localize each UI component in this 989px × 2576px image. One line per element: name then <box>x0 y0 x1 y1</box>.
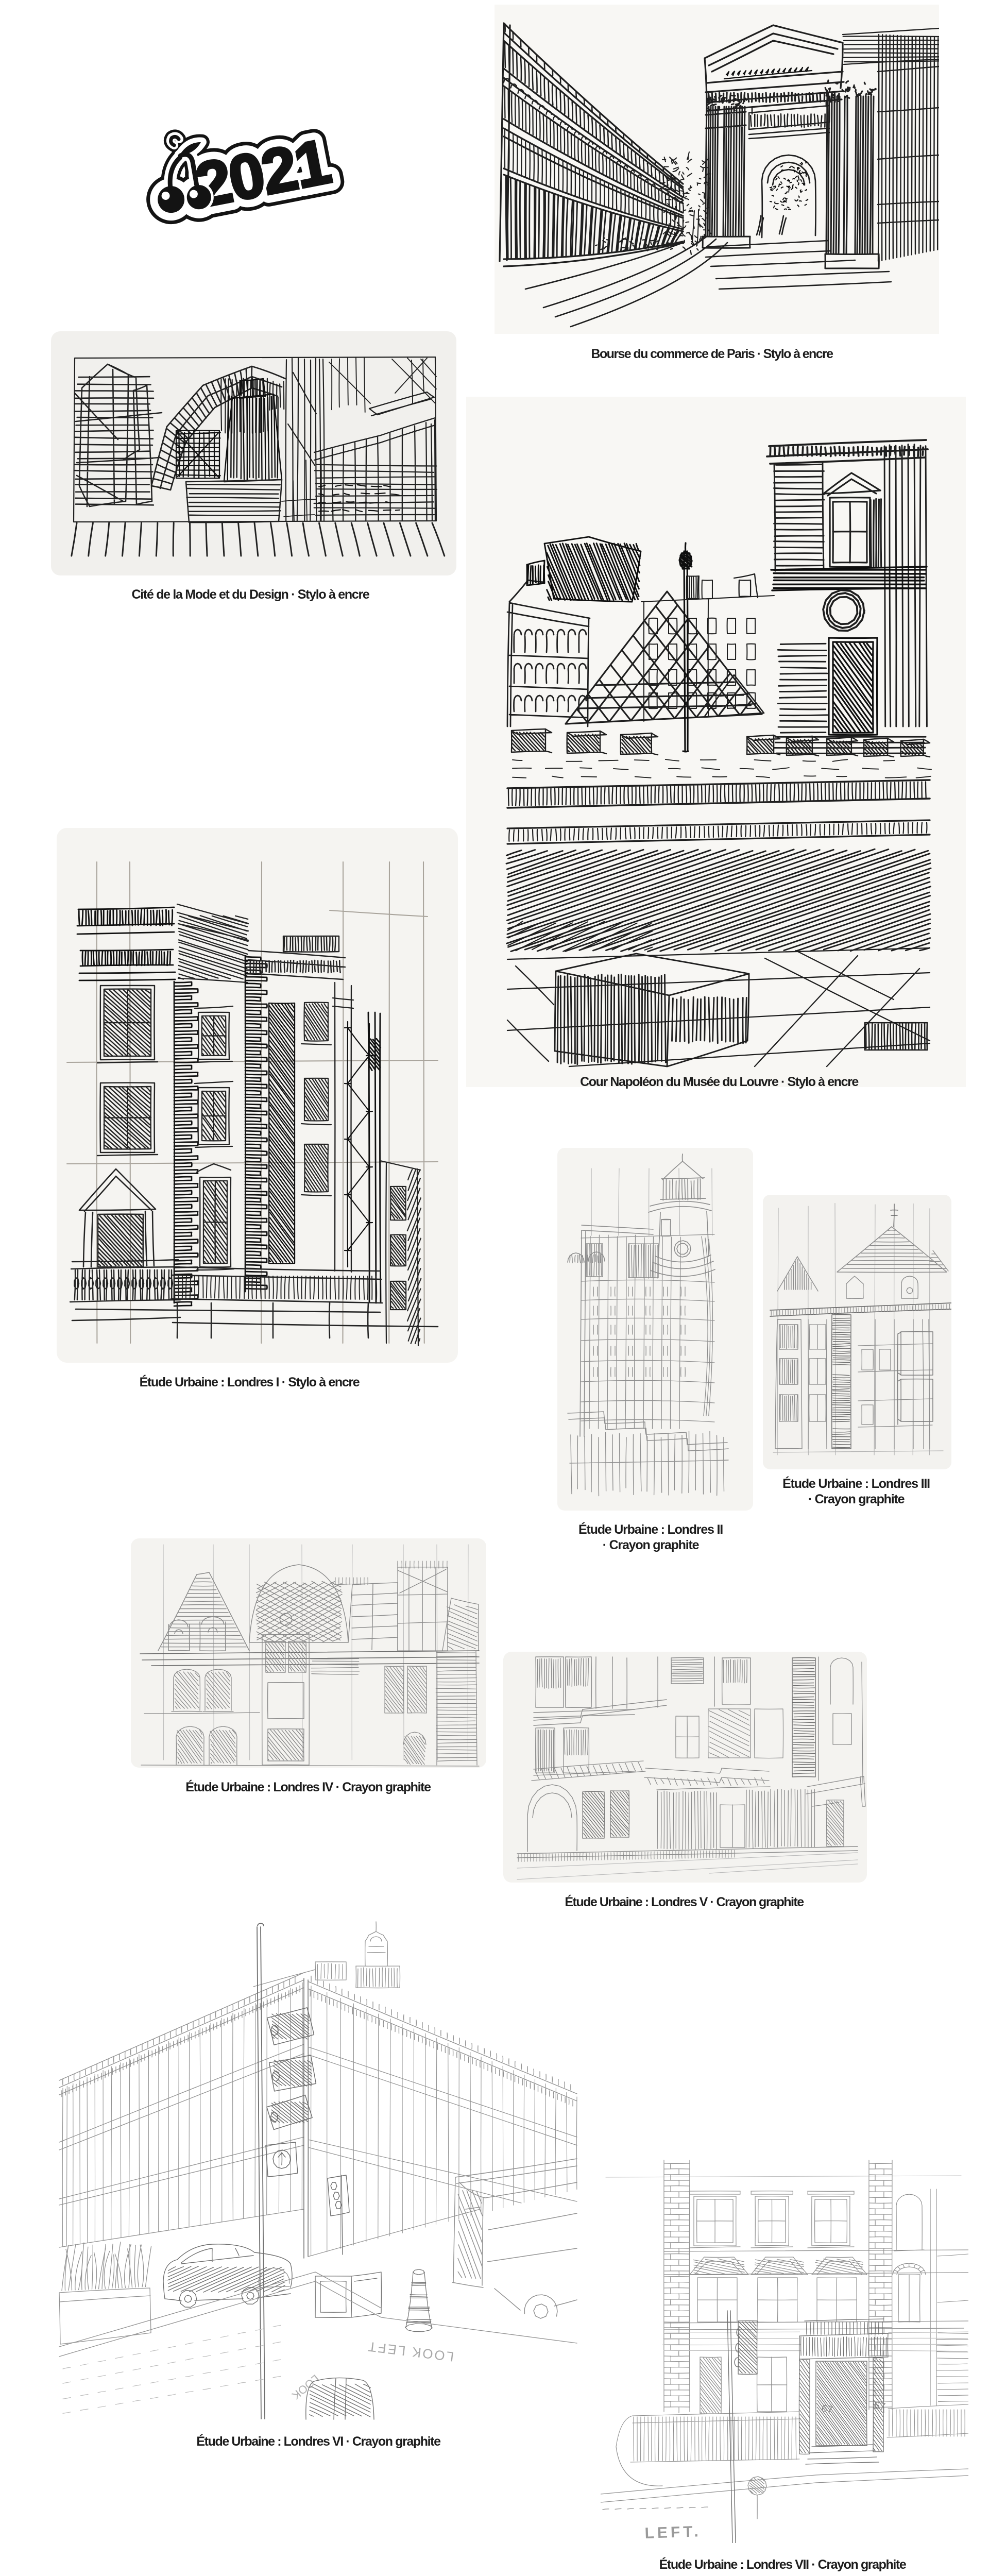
svg-text:67: 67 <box>821 2403 833 2416</box>
svg-text:2021: 2021 <box>190 126 335 221</box>
svg-text:LEFT.: LEFT. <box>644 2523 702 2542</box>
svg-text:LOOK LEFT: LOOK LEFT <box>366 2338 454 2365</box>
svg-text:67: 67 <box>873 2400 886 2413</box>
